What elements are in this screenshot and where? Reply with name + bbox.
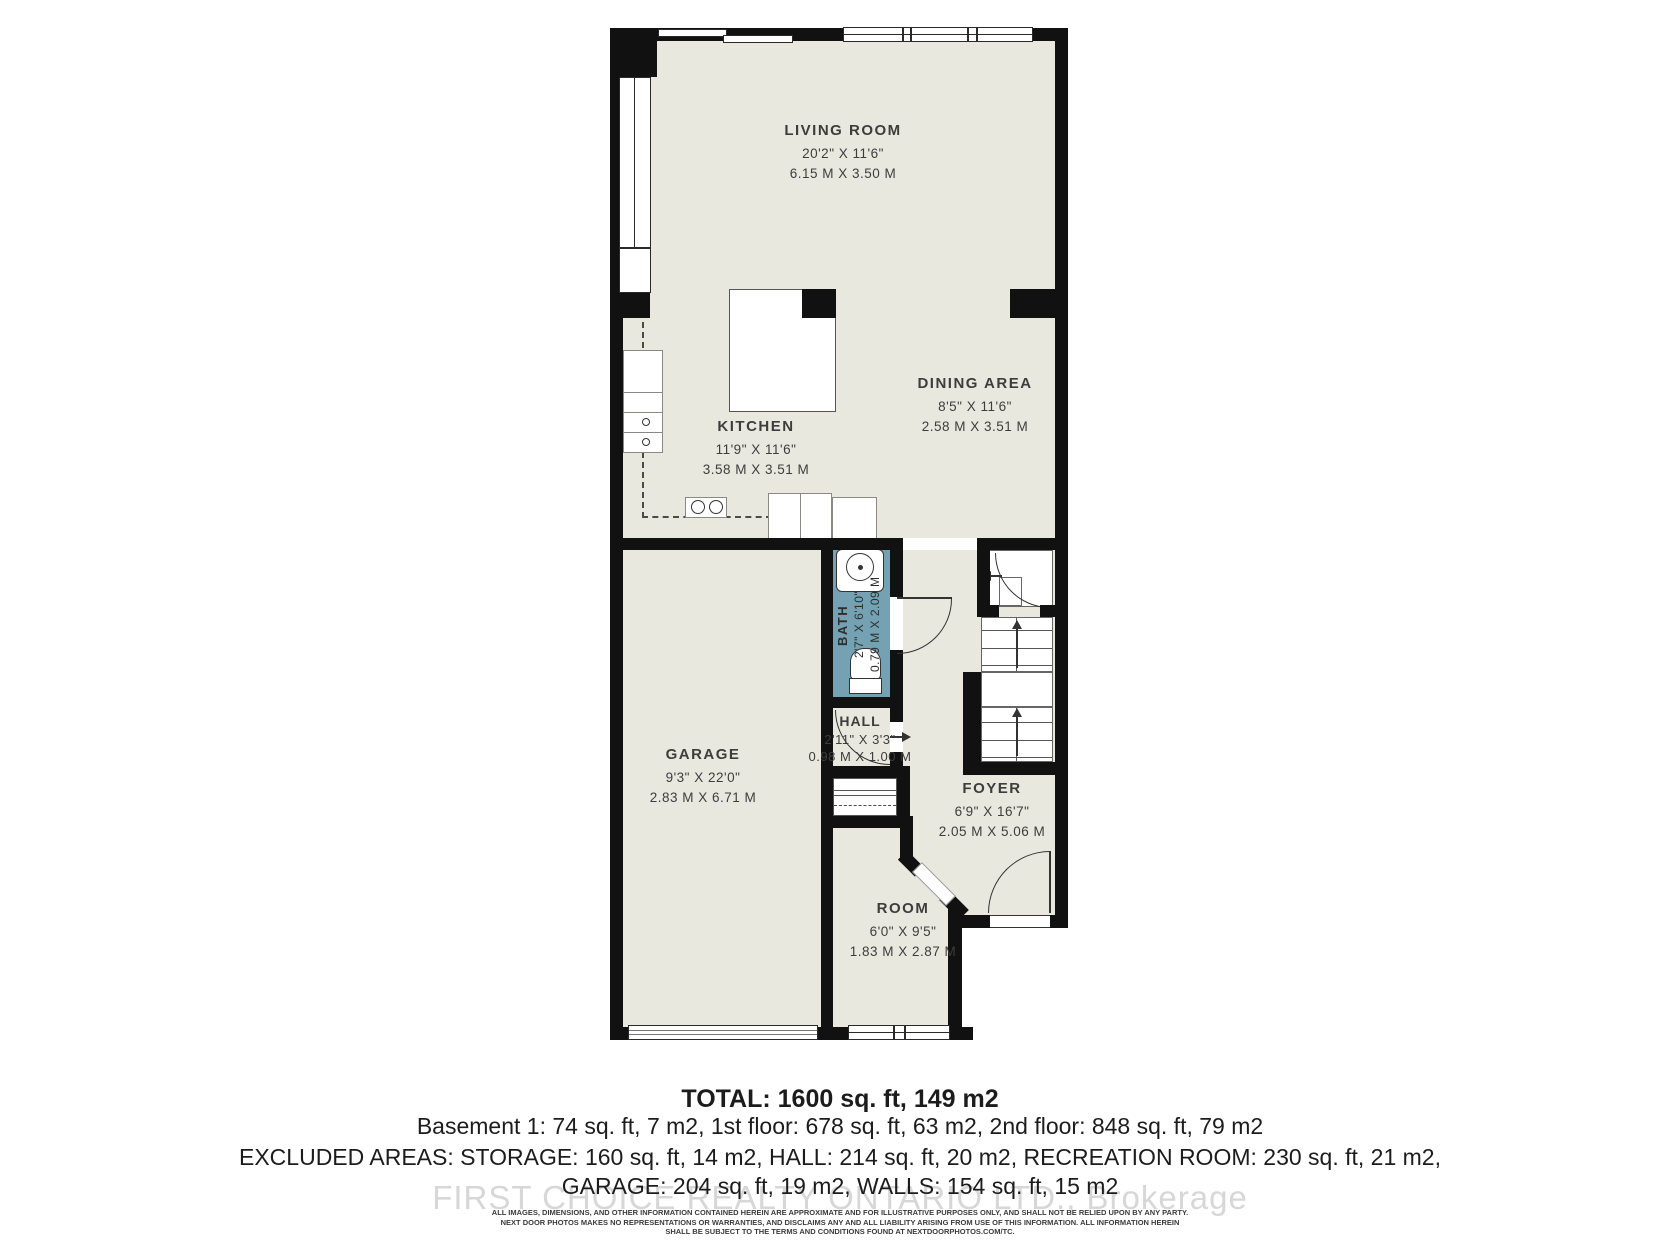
wall [610, 538, 903, 550]
bath-dims-ft: 2'7" X 6'10" [852, 558, 866, 690]
floor-main-level [623, 41, 1055, 550]
room-dims-m: 0.98 M X 1.00 M [809, 748, 912, 765]
arrow-up-icon [1012, 708, 1022, 717]
wall [821, 538, 833, 1040]
room-dims-m: 3.58 M X 3.51 M [703, 460, 810, 480]
wall [977, 605, 999, 617]
window-mullion [893, 1026, 895, 1039]
foyer-label: FOYER 6'9" X 16'7" 2.05 M X 5.06 M [939, 780, 1046, 841]
room-name: DINING AREA [917, 375, 1032, 392]
closet-shelf-line [834, 795, 896, 796]
wall [890, 650, 903, 722]
floor-plan-page: LIVING ROOM 20'2" X 11'6" 6.15 M X 3.50 … [0, 0, 1680, 1260]
floor-areas-text: Basement 1: 74 sq. ft, 7 m2, 1st floor: … [0, 1113, 1680, 1140]
wall [897, 778, 910, 816]
window [658, 29, 727, 37]
wall [821, 766, 910, 778]
appliance-knob-icon [642, 418, 650, 426]
room-name: KITCHEN [703, 418, 810, 435]
wall [610, 28, 657, 77]
kitchen-counter [623, 350, 663, 393]
disclaimer-line-1: ALL IMAGES, DIMENSIONS, AND OTHER INFORM… [0, 1208, 1680, 1217]
wall [977, 538, 1055, 550]
garage-door-line [629, 1034, 817, 1035]
window-mullion [976, 28, 978, 41]
room-name: HALL [809, 714, 912, 729]
wall-column [802, 289, 836, 318]
garage-label: GARAGE 9'3" X 22'0" 2.83 M X 6.71 M [650, 746, 757, 807]
kitchen-counter [832, 497, 877, 540]
kitchen-label: KITCHEN 11'9" X 11'6" 3.58 M X 3.51 M [703, 418, 810, 479]
room-dims-ft: 20'2" X 11'6" [784, 144, 901, 164]
wall [1055, 28, 1068, 928]
window-frame-line [634, 78, 635, 247]
room-dims-ft: 11'9" X 11'6" [703, 440, 810, 460]
wall-opening [903, 538, 977, 550]
wall [890, 550, 903, 597]
front-door-opening [990, 915, 1050, 928]
window [619, 77, 651, 248]
room-dims-m: 2.58 M X 3.51 M [917, 417, 1032, 437]
wall [833, 697, 890, 708]
hall-label: HALL 2'11" X 3'3" 0.98 M X 1.00 M [809, 714, 912, 765]
room-dims-m: 6.15 M X 3.50 M [784, 164, 901, 184]
living-room-label: LIVING ROOM 20'2" X 11'6" 6.15 M X 3.50 … [784, 122, 901, 183]
arrow-up-icon [1012, 620, 1022, 629]
counter-divider [800, 494, 801, 539]
room-dims-ft: 6'9" X 16'7" [939, 802, 1046, 822]
window-mullion [902, 28, 904, 41]
wall [963, 672, 981, 775]
window-frame-line [849, 1032, 949, 1033]
wall [962, 915, 990, 928]
arrow-shaft [1016, 628, 1018, 668]
excluded-areas-text-1: EXCLUDED AREAS: STORAGE: 160 sq. ft, 14 … [0, 1144, 1680, 1171]
room-name: LIVING ROOM [784, 122, 901, 139]
arrow-shaft [1016, 716, 1018, 756]
window-mullion [910, 28, 912, 41]
room-name: ROOM [850, 900, 957, 917]
wall [1010, 289, 1068, 318]
wall [610, 289, 650, 318]
bath-label: BATH [835, 565, 850, 685]
room-dims-ft: 8'5" X 11'6" [917, 397, 1032, 417]
burner-icon [691, 500, 705, 514]
room-dims-m: 1.83 M X 2.87 M [850, 942, 957, 962]
wall [1050, 915, 1068, 928]
stair-tread [982, 757, 1052, 758]
window [619, 248, 651, 293]
closet-rod-dashed-line [834, 805, 896, 806]
room-dims-ft: 6'0" X 9'5" [850, 922, 957, 942]
room-dims-ft: 9'3" X 22'0" [650, 768, 757, 788]
arrow-shaft [990, 575, 1002, 577]
garage-door-line [629, 1030, 817, 1031]
room-name: GARAGE [650, 746, 757, 763]
garage-door [628, 1025, 818, 1040]
room-dims-m: 2.05 M X 5.06 M [939, 822, 1046, 842]
window-mullion [904, 1026, 906, 1039]
wall [1040, 605, 1055, 617]
room-name: FOYER [939, 780, 1046, 797]
window-mullion [967, 28, 969, 41]
bath-dims-m: 0.79 M X 2.09 M [868, 553, 882, 695]
disclaimer-line-2: NEXT DOOR PHOTOS MAKES NO REPRESENTATION… [0, 1218, 1680, 1227]
room-dims-ft: 2'11" X 3'3" [809, 731, 912, 748]
appliance-knob-icon [642, 438, 650, 446]
wall [977, 762, 1055, 775]
closet-shelf-line [834, 790, 896, 791]
excluded-areas-text-2: GARAGE: 204 sq. ft, 19 m2, WALLS: 154 sq… [0, 1173, 1680, 1200]
dining-area-label: DINING AREA 8'5" X 11'6" 2.58 M X 3.51 M [917, 375, 1032, 436]
kitchen-counter [623, 392, 663, 413]
stair-landing [981, 672, 1053, 707]
total-area-text: TOTAL: 1600 sq. ft, 149 m2 [0, 1085, 1680, 1114]
window-frame-line [844, 34, 1032, 35]
window [723, 35, 793, 43]
room-dims-m: 2.83 M X 6.71 M [650, 788, 757, 808]
closet [833, 778, 897, 816]
burner-icon [709, 500, 723, 514]
disclaimer-line-3: SHALL BE SUBJECT TO THE TERMS AND CONDIT… [0, 1227, 1680, 1236]
room-label: ROOM 6'0" X 9'5" 1.83 M X 2.87 M [850, 900, 957, 961]
